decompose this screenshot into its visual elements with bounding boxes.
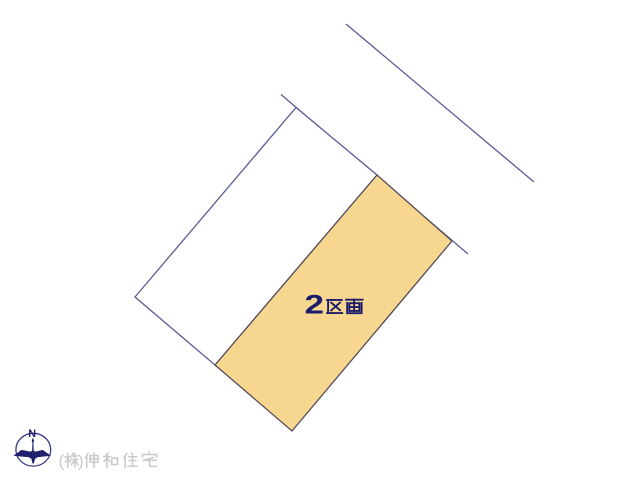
svg-text:2: 2 [305,290,325,320]
svg-text:(: ( [59,452,65,471]
svg-text:N: N [28,428,36,440]
svg-text:): ) [78,452,84,471]
